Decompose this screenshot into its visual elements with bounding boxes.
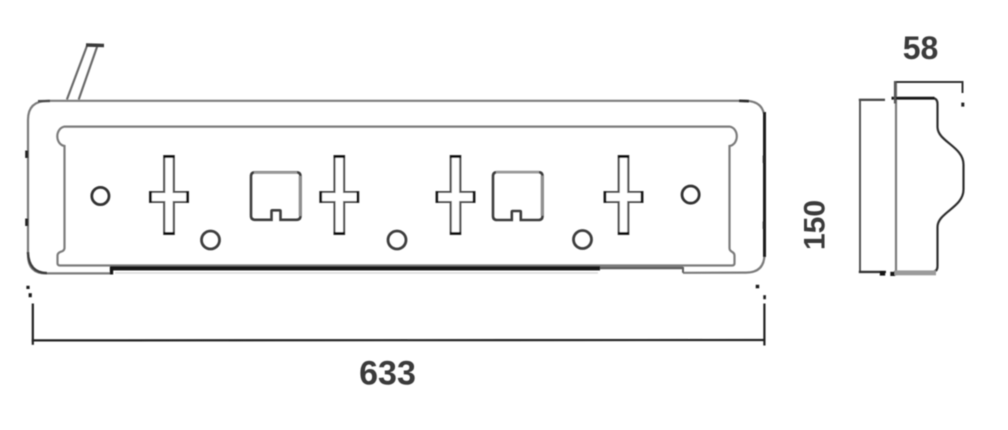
svg-text:633: 633 (359, 355, 416, 393)
svg-text:150: 150 (799, 200, 832, 250)
svg-text:58: 58 (903, 30, 939, 66)
